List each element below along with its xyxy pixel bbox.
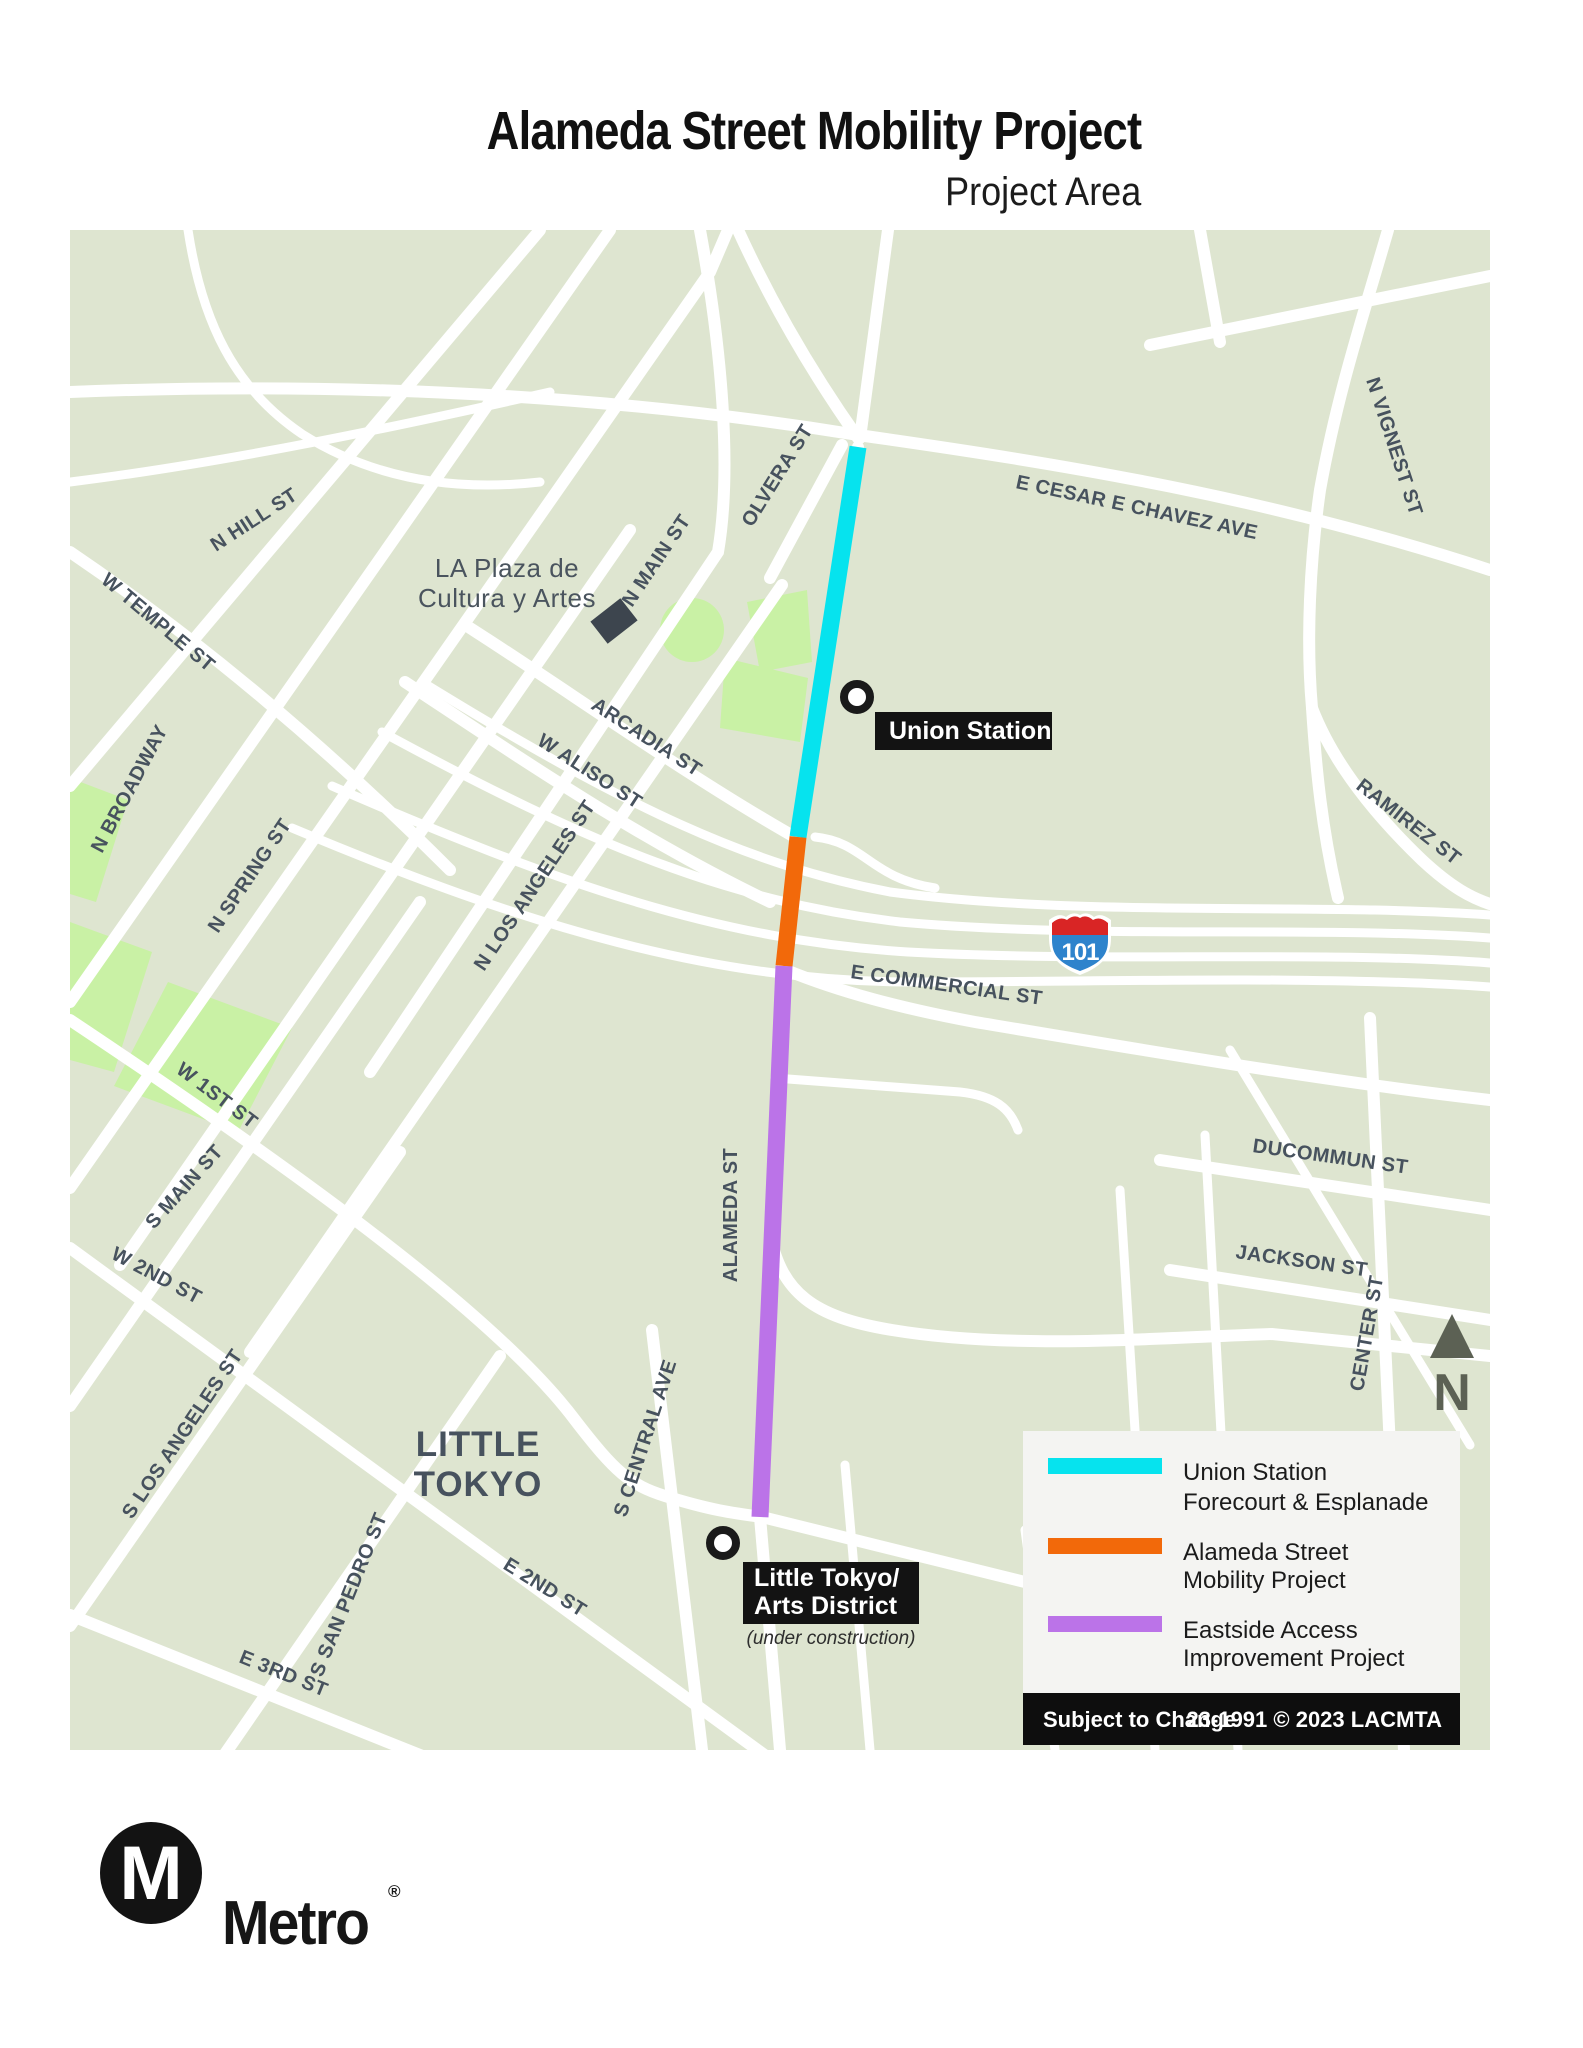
little-tokyo-label-line1: LITTLE: [416, 1425, 541, 1464]
metro-logo-icon: M: [100, 1822, 202, 1924]
little-tokyo-construction-note: (under construction): [747, 1628, 916, 1649]
legend-label-alameda-street-line1: Alameda Street: [1183, 1539, 1349, 1566]
metro-registered-mark: ®: [388, 1882, 401, 1902]
la-plaza-label-line2: Cultura y Artes: [418, 583, 596, 613]
street-label-alameda-st: ALAMEDA ST: [720, 1148, 742, 1282]
metro-logo-m: M: [119, 1830, 182, 1917]
legend-label-eastside-access-line1: Eastside Access: [1183, 1617, 1358, 1644]
little-tokyo-station-marker-icon: [710, 1530, 736, 1556]
legend-label-alameda-street-line2: Mobility Project: [1183, 1567, 1346, 1594]
highway-101-number: 101: [1061, 939, 1099, 966]
legend: Union Station Forecourt & Esplanade Alam…: [1023, 1431, 1460, 1745]
page: { "header": { "title": "Alameda Street M…: [0, 0, 1583, 2048]
legend-swatch-union-station: [1048, 1458, 1162, 1474]
little-tokyo-label-line2: TOKYO: [414, 1465, 543, 1504]
little-tokyo-badge-line1: Little Tokyo/: [754, 1564, 899, 1592]
header: Alameda Street Mobility Project Project …: [362, 100, 1141, 215]
document-id-copyright: 23-1991 © 2023 LACMTA: [1187, 1707, 1443, 1732]
legend-swatch-eastside-access: [1048, 1616, 1162, 1632]
union-station-marker-icon: [844, 684, 870, 710]
legend-swatch-alameda-street: [1048, 1538, 1162, 1554]
little-tokyo-badge-line2: Arts District: [754, 1592, 898, 1620]
project-area-map: N HILL ST W TEMPLE ST N BROADWAY N SPRIN…: [70, 230, 1490, 1750]
map-canvas: N HILL ST W TEMPLE ST N BROADWAY N SPRIN…: [70, 230, 1490, 1750]
legend-label-eastside-access-line2: Improvement Project: [1183, 1645, 1405, 1672]
north-arrow-label: N: [1433, 1364, 1471, 1422]
union-station-badge-label: Union Station: [889, 717, 1051, 745]
legend-label-union-station-line2: Forecourt & Esplanade: [1183, 1489, 1428, 1516]
la-plaza-label-line1: LA Plaza de: [435, 553, 579, 583]
metro-wordmark: Metro: [222, 1888, 368, 1959]
legend-label-union-station-line1: Union Station: [1183, 1459, 1327, 1486]
page-subtitle: Project Area: [440, 170, 1141, 215]
page-title: Alameda Street Mobility Project: [486, 100, 1141, 162]
